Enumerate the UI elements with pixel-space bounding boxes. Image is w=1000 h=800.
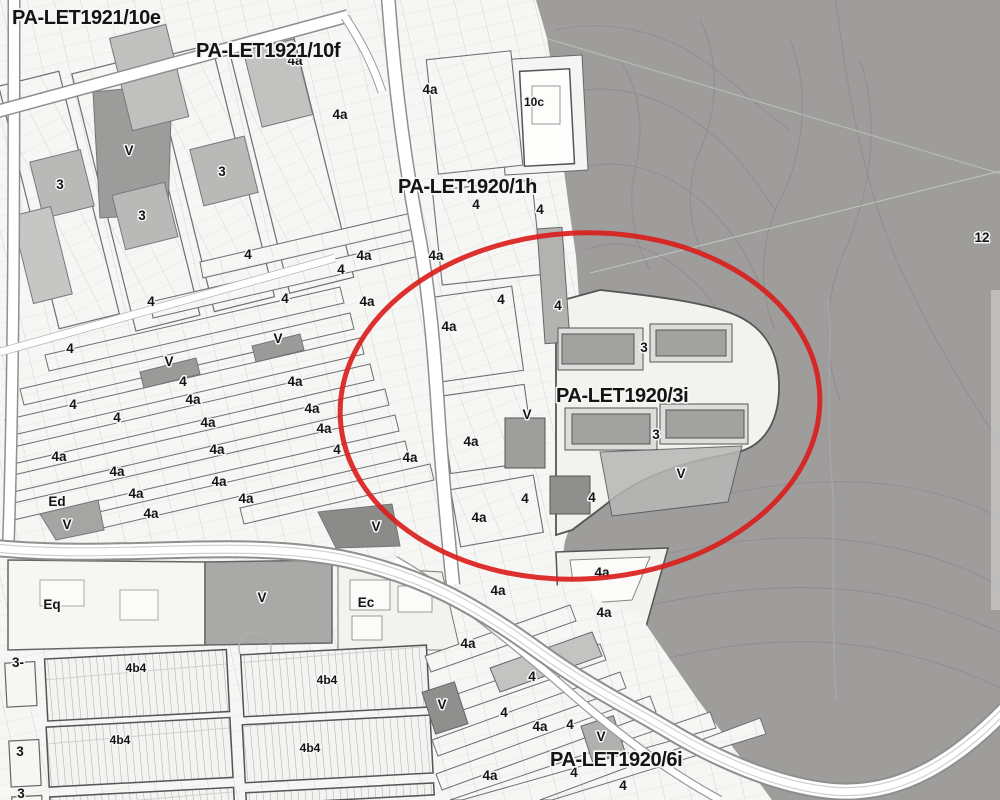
zone-label: 4 [281,291,289,306]
zone-label: 4 [619,778,627,793]
zone-label: V [62,517,71,532]
zone-label: 4a [463,434,479,449]
zone-label: V [124,143,133,158]
zone-label: 4a [359,294,375,309]
zone-label: 4a [596,605,612,620]
blocks-4b4 [5,639,435,800]
zone-label: 4 [500,705,508,720]
plan-title-label: PA-LET1920/3i [556,385,688,407]
zone-label: 4a [460,636,476,651]
zone-label: 4 [179,374,187,389]
zone-label: 4 [588,490,596,505]
planning-map-figure: 4a4a10c4aV333444444a4a44a44V4V44a4a34a44… [0,0,1000,800]
zone-label: 4 [244,247,252,262]
zone-label: 4 [528,669,536,684]
zone-label: 4 [554,298,562,313]
building-10c [520,69,575,166]
zone-label: 3 [640,340,648,355]
plan-title-label: PA-LET1920/1h [398,176,537,198]
zone-label: 4a [332,107,348,122]
zone-label: 4 [566,717,574,732]
building-v-center [505,418,545,468]
zone-label: 3 [16,744,24,759]
zone-label: V [676,466,685,481]
zone-label: 4 [147,294,155,309]
zone-label: 4a [287,374,303,389]
zone-label: 4a [471,510,487,525]
zone-label: 4 [66,341,74,356]
zone-label: 4a [402,450,418,465]
zone-label: 12 [974,230,989,245]
zone-label: 3 [17,786,25,800]
plan-title-label: PA-LET1921/10e [12,7,161,29]
zone-label: 4a [428,248,444,263]
zone-label: 10c [524,95,544,109]
zone-label: 3 [218,164,226,179]
zone-label: 4 [497,292,505,307]
zone-label: V [164,354,173,369]
zone-label: 4a [316,421,332,436]
zone-label: 4b4 [110,733,131,747]
zone-label: 4a [356,248,372,263]
zone-label: 4a [209,442,225,457]
zone-label: 4a [143,506,159,521]
zone-label: Ed [48,494,65,509]
zone-label: 4 [521,491,529,506]
plan-title-label: PA-LET1920/6i [550,749,682,771]
zone-label: 4a [200,415,216,430]
zone-label: 4a [185,392,201,407]
zone-label: 4a [422,82,438,97]
zone-label: 4b4 [126,661,147,675]
zone-label: V [371,519,380,534]
zone-label: 4 [472,197,480,212]
zone-label: V [596,729,605,744]
zone-label: 4a [51,449,67,464]
zone-label: 4a [490,583,506,598]
zone-label: 4a [304,401,320,416]
zone-label: V [273,331,282,346]
zone-label: Eq [43,597,60,612]
zone-label: 4 [69,397,77,412]
zoning-map: 4a4a10c4aV333444444a4a44a44V4V44a4a34a44… [0,0,1000,800]
zone-label: 3 [56,177,64,192]
zone-label: 4a [532,719,548,734]
zone-label: 3 [652,427,660,442]
zone-label: 4a [109,464,125,479]
zone-label: 4 [333,442,341,457]
zone-label: 4b4 [300,741,321,755]
zone-label: 3 [138,208,146,223]
zone-label: 4 [337,262,345,277]
zone-label: V [437,697,446,712]
zone-label: 3- [12,655,24,670]
zone-label: 4a [441,319,457,334]
zone-label: 4a [128,486,144,501]
zone-label: 4a [211,474,227,489]
zone-label: 4 [536,202,544,217]
zone-label: Ec [358,595,375,610]
plan-title-label: PA-LET1921/10f [196,40,341,62]
zone-label: 4a [238,491,254,506]
green-zone-v [205,560,332,645]
zone-label: 4b4 [317,673,338,687]
zone-label: V [522,407,531,422]
zone-label: 4a [482,768,498,783]
zone-label: 4 [113,410,121,425]
zone-label: V [257,590,266,605]
